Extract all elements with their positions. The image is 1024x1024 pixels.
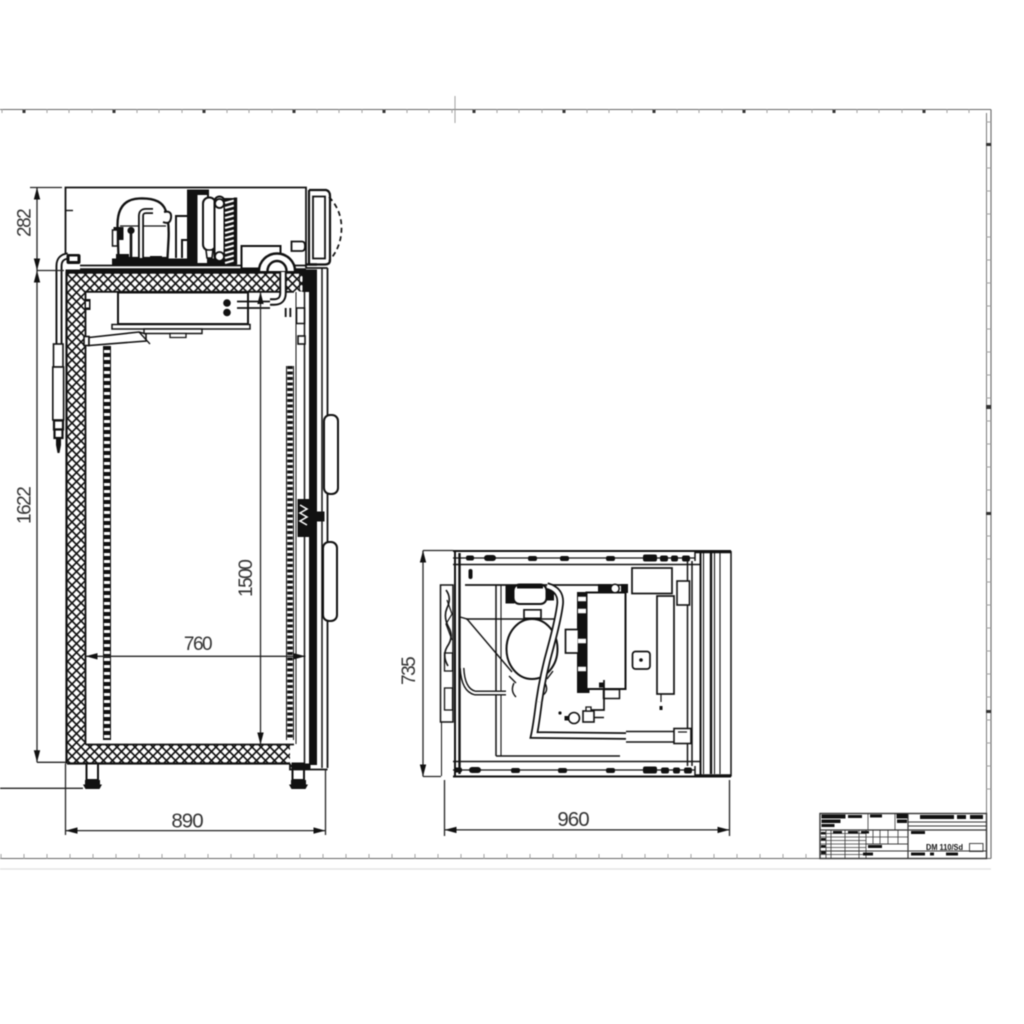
svg-text:760: 760 (184, 634, 212, 655)
svg-text:890: 890 (171, 810, 203, 833)
svg-text:DM 110/Sd: DM 110/Sd (926, 842, 963, 852)
svg-text:282: 282 (15, 209, 36, 237)
svg-text:1622: 1622 (15, 487, 36, 524)
svg-text:735: 735 (399, 657, 420, 685)
svg-text:1500: 1500 (236, 560, 257, 597)
svg-text:960: 960 (557, 808, 589, 831)
